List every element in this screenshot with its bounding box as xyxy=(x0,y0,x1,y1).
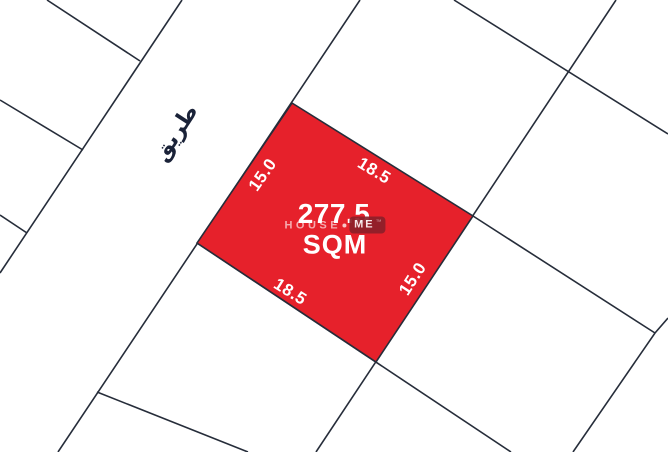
trademark-symbol: ™ xyxy=(376,220,382,226)
south-parcel-divider xyxy=(97,392,248,452)
watermark: HOUSE ME ™ xyxy=(284,217,385,234)
northeast-parcel-divider xyxy=(454,0,668,134)
watermark-me-badge: ME ™ xyxy=(349,217,386,234)
road-west-boundary-line xyxy=(0,0,182,273)
west-parcel-divider-3 xyxy=(0,215,27,233)
watermark-brand-house: HOUSE xyxy=(284,219,341,231)
watermark-dot-icon xyxy=(342,223,346,227)
plot-area-unit: SQM xyxy=(303,230,368,261)
west-parcel-divider-1 xyxy=(47,0,140,61)
east-parcel-divider xyxy=(473,216,655,333)
far-east-boundary-line xyxy=(573,318,668,452)
watermark-brand-me: ME xyxy=(354,220,375,231)
west-parcel-divider-2 xyxy=(0,100,83,150)
land-plot-map: طريق 15.0 18.5 18.5 15.0 277.5 SQM HOUSE… xyxy=(0,0,668,452)
